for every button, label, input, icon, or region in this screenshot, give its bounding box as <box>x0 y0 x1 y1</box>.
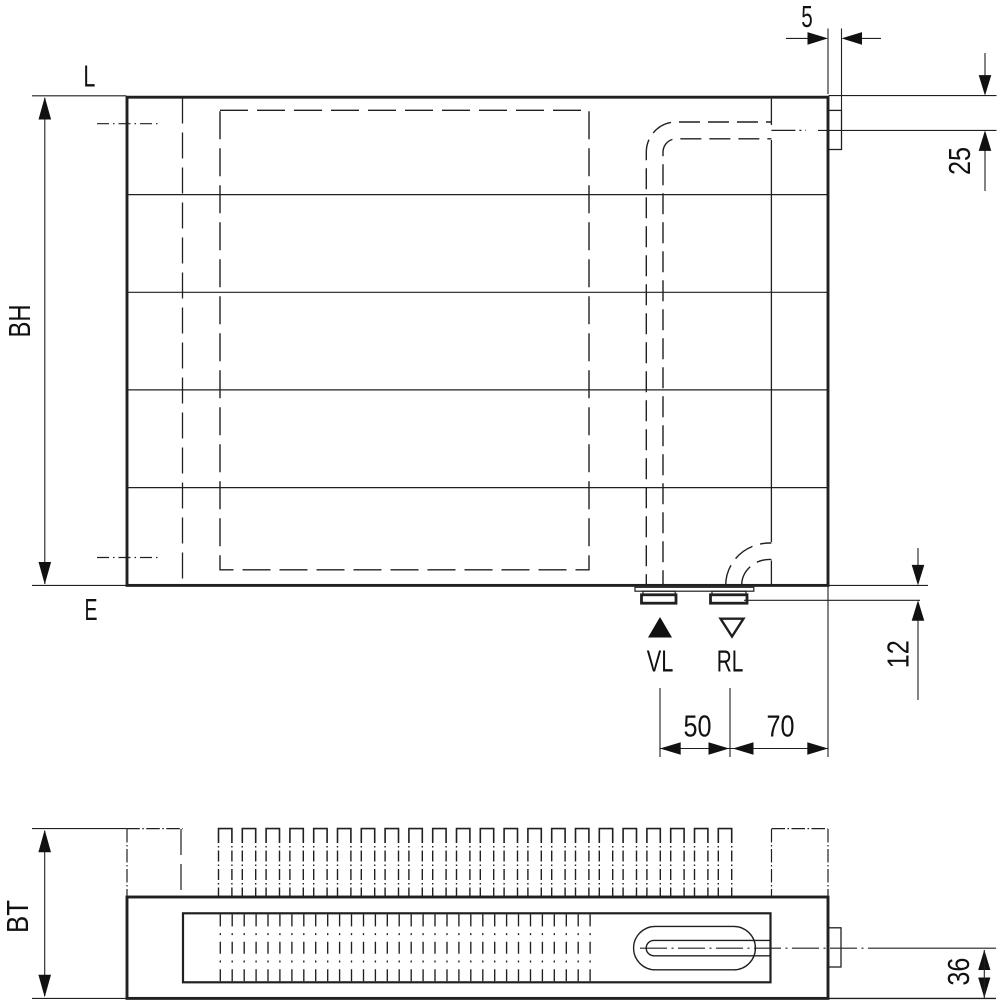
svg-text:RL: RL <box>717 645 744 679</box>
svg-text:E: E <box>85 592 98 627</box>
svg-text:BT: BT <box>0 900 35 933</box>
svg-text:36: 36 <box>941 958 976 986</box>
svg-text:12: 12 <box>881 640 916 668</box>
svg-text:50: 50 <box>684 709 712 744</box>
svg-text:BH: BH <box>2 305 37 338</box>
svg-text:L: L <box>83 58 95 93</box>
svg-text:VL: VL <box>647 645 674 679</box>
svg-text:70: 70 <box>767 709 795 744</box>
svg-text:5: 5 <box>801 0 813 34</box>
svg-text:25: 25 <box>942 147 977 175</box>
